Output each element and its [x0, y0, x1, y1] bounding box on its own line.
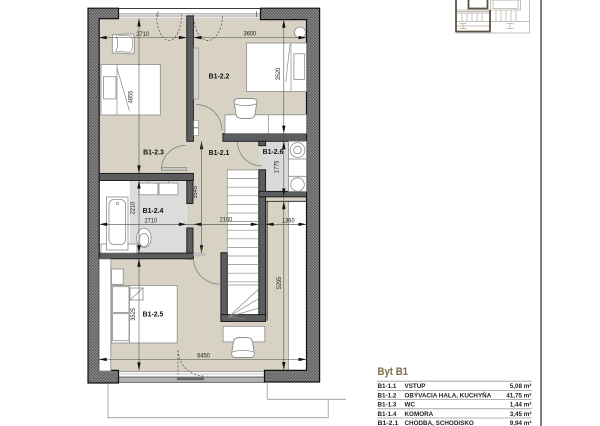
svg-text:3525: 3525 [130, 308, 137, 321]
svg-text:1775: 1775 [273, 160, 280, 173]
svg-text:3545: 3545 [192, 186, 199, 199]
svg-text:B1-2.3: B1-2.3 [143, 147, 164, 156]
svg-text:VSTUP: VSTUP [405, 383, 426, 390]
svg-text:WC: WC [405, 402, 416, 409]
svg-text:6450: 6450 [197, 353, 210, 360]
svg-text:B1-2.2: B1-2.2 [209, 71, 230, 80]
svg-text:B1-2.1: B1-2.1 [209, 148, 231, 157]
svg-text:B1-1.1: B1-1.1 [378, 383, 397, 390]
svg-text:3,45 m²: 3,45 m² [510, 411, 532, 418]
svg-text:41,75 m²: 41,75 m² [506, 392, 531, 399]
svg-text:B1-2.6: B1-2.6 [263, 147, 284, 156]
svg-text:B1-2.4: B1-2.4 [143, 206, 165, 215]
svg-text:5,08 m²: 5,08 m² [510, 383, 532, 390]
svg-text:2210: 2210 [130, 201, 137, 214]
svg-text:1360: 1360 [282, 218, 295, 225]
svg-text:3600: 3600 [244, 31, 257, 38]
svg-text:5295: 5295 [276, 276, 283, 289]
svg-text:KOMORA: KOMORA [405, 411, 434, 418]
svg-text:2100: 2100 [220, 217, 233, 224]
svg-text:B1-1.3: B1-1.3 [378, 402, 397, 409]
svg-text:B1-2.1: B1-2.1 [378, 420, 399, 426]
svg-text:CHODBA, SCHODISKO: CHODBA, SCHODISKO [405, 420, 474, 426]
svg-text:1,44 m²: 1,44 m² [510, 402, 532, 409]
svg-text:B1-1.2: B1-1.2 [378, 392, 397, 399]
svg-text:3520: 3520 [275, 67, 282, 80]
svg-text:9,94 m²: 9,94 m² [510, 420, 532, 426]
svg-text:OBÝVACIA HALA, KUCHYŇA: OBÝVACIA HALA, KUCHYŇA [405, 390, 492, 399]
svg-text:4855: 4855 [128, 90, 135, 103]
svg-text:2710: 2710 [136, 31, 149, 38]
svg-text:2710: 2710 [145, 217, 158, 224]
svg-text:B1-2.5: B1-2.5 [143, 310, 165, 319]
svg-text:B1-1.4: B1-1.4 [378, 411, 397, 418]
svg-text:Byt B1: Byt B1 [378, 366, 409, 378]
